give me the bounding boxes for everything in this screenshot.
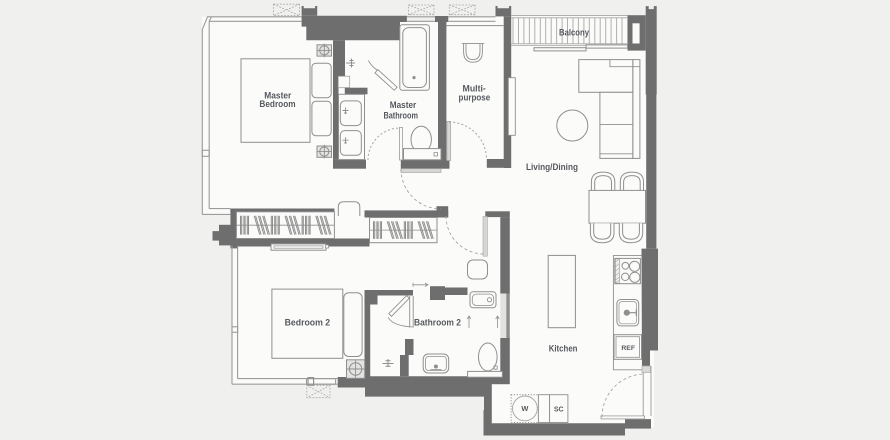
svg-text:W: W: [521, 404, 528, 413]
svg-text:Master: Master: [390, 100, 417, 110]
svg-text:Kitchen: Kitchen: [549, 344, 578, 354]
svg-text:REF: REF: [621, 345, 635, 352]
svg-text:Balcony: Balcony: [559, 28, 589, 38]
svg-text:Bathroom: Bathroom: [383, 111, 418, 121]
svg-text:purpose: purpose: [459, 93, 491, 103]
svg-text:Bathroom 2: Bathroom 2: [414, 318, 461, 328]
svg-text:Bedroom 2: Bedroom 2: [285, 318, 331, 328]
svg-text:Bedroom: Bedroom: [259, 99, 295, 109]
svg-text:SC: SC: [554, 407, 564, 414]
svg-text:Living/Dining: Living/Dining: [526, 162, 578, 172]
